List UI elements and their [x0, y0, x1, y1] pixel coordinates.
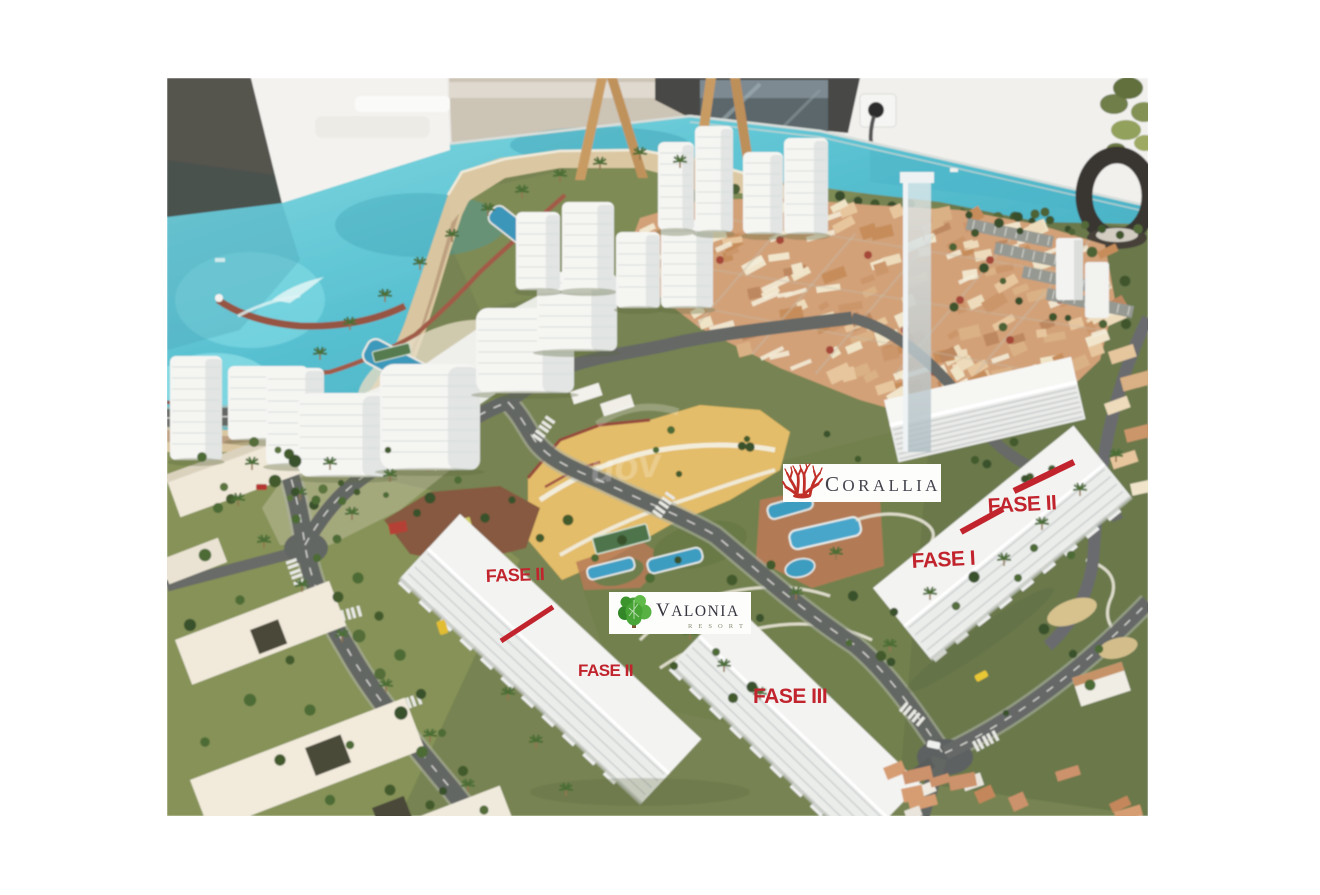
svg-text:FASE III: FASE III	[753, 685, 827, 708]
svg-text:FASE I: FASE I	[911, 547, 976, 573]
svg-text:FASE II: FASE II	[485, 564, 544, 586]
svg-text:VALONIA: VALONIA	[656, 600, 740, 621]
svg-text:R E S O R T: R E S O R T	[688, 623, 745, 630]
svg-text:FASE II: FASE II	[578, 661, 633, 680]
svg-text:CORALLIA: CORALLIA	[825, 472, 941, 496]
